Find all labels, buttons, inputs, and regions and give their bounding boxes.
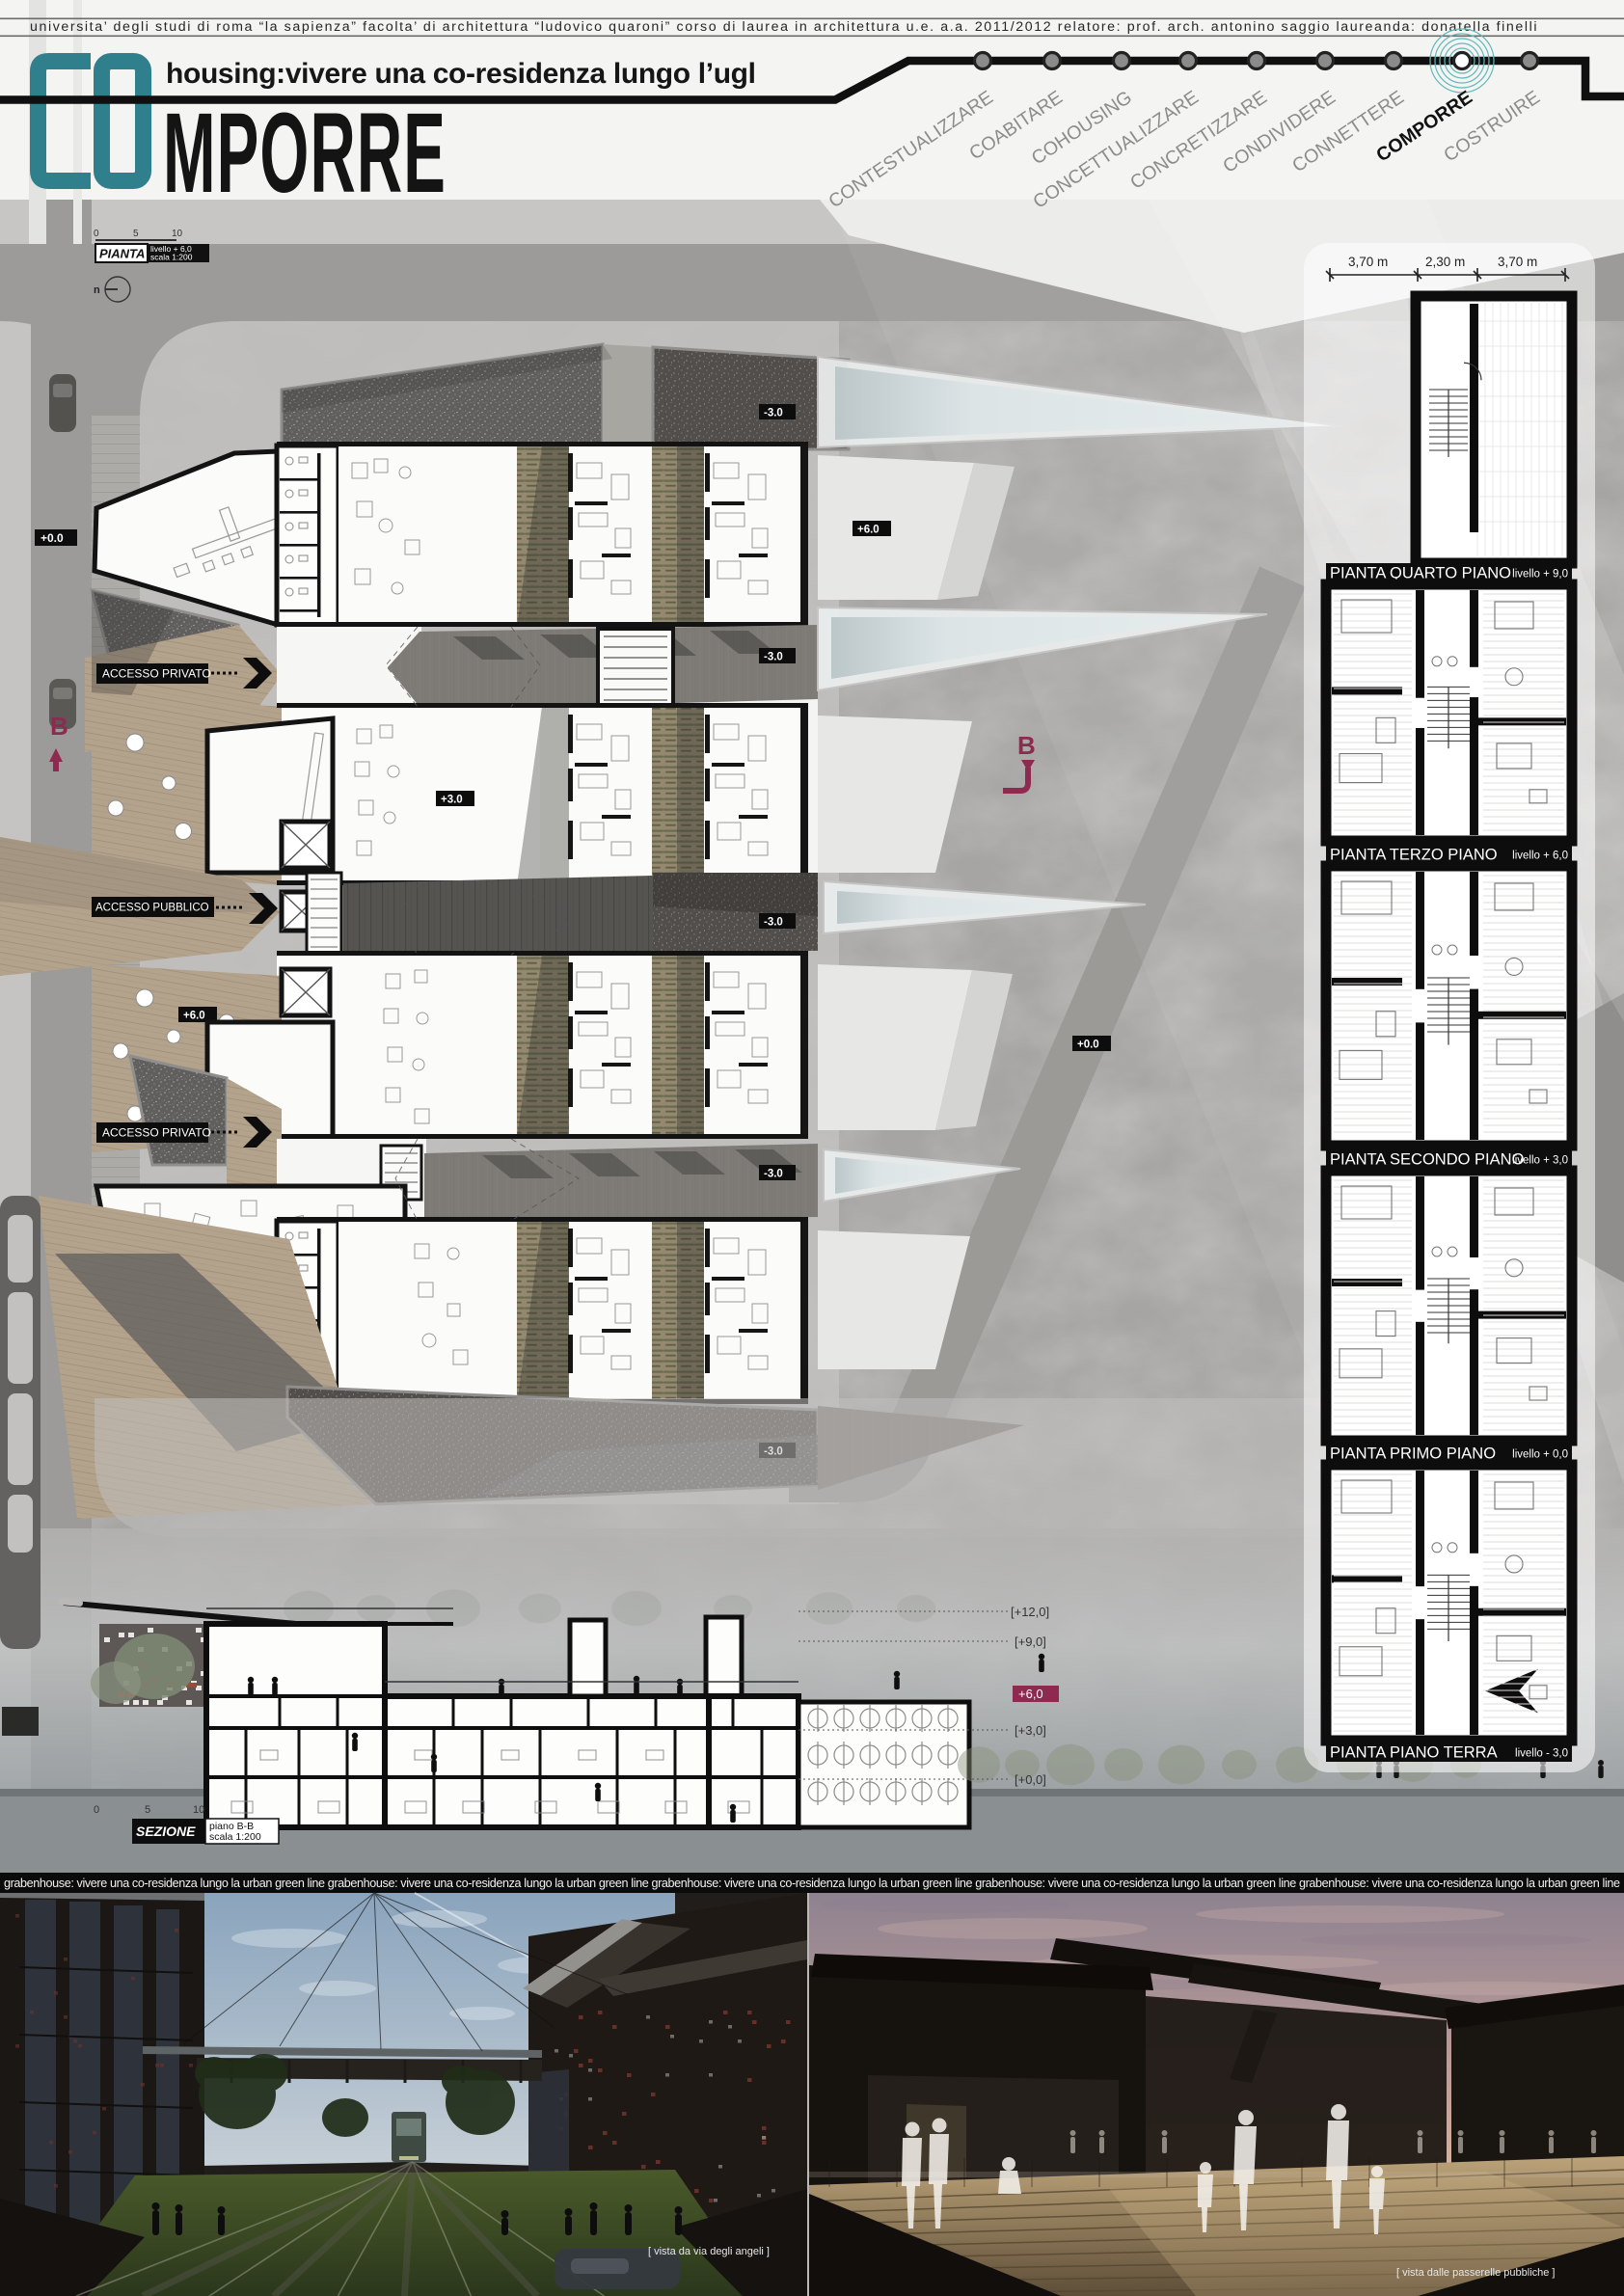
svg-text:10: 10 <box>193 1804 204 1816</box>
svg-text:+0.0: +0.0 <box>41 531 64 545</box>
svg-text:ACCESSO PUBBLICO: ACCESSO PUBBLICO <box>95 903 209 914</box>
svg-text:[+9,0]: [+9,0] <box>1015 1634 1046 1649</box>
svg-text:livello + 0,0: livello + 0,0 <box>1512 1449 1568 1461</box>
svg-text:[+3,0]: [+3,0] <box>1015 1723 1046 1738</box>
svg-text:0: 0 <box>94 229 99 239</box>
svg-text:B: B <box>1017 731 1036 760</box>
svg-text:PIANTA PIANO TERRA: PIANTA PIANO TERRA <box>1330 1744 1498 1762</box>
svg-text:+0.0: +0.0 <box>1077 1040 1099 1051</box>
svg-text:[+12,0]: [+12,0] <box>1011 1605 1049 1619</box>
svg-text:ACCESSO PRIVATO: ACCESSO PRIVATO <box>102 667 211 681</box>
svg-text:10: 10 <box>172 229 183 239</box>
svg-text:[+0,0]: [+0,0] <box>1015 1772 1046 1787</box>
svg-text:B: B <box>50 712 68 741</box>
svg-text:[ vista da via degli angeli ]: [ vista da via degli angeli ] <box>648 2246 770 2257</box>
svg-text:+6,0: +6,0 <box>1018 1687 1043 1701</box>
svg-text:2,30 m: 2,30 m <box>1425 255 1465 269</box>
svg-text:+3.0: +3.0 <box>441 795 463 806</box>
svg-text:housing:vivere una co-residenz: housing:vivere una co-residenza lungo l’… <box>166 58 756 90</box>
svg-text:scala 1:200: scala 1:200 <box>209 1831 261 1843</box>
svg-text:livello - 3,0: livello - 3,0 <box>1515 1748 1568 1760</box>
svg-text:5: 5 <box>133 229 139 239</box>
svg-text:livello + 6,0: livello + 6,0 <box>1512 851 1568 862</box>
svg-text:ACCESSO PRIVATO: ACCESSO PRIVATO <box>102 1126 211 1140</box>
svg-text:MPORRE: MPORRE <box>163 91 447 217</box>
svg-text:3,70 m: 3,70 m <box>1348 255 1388 269</box>
svg-text:-3.0: -3.0 <box>764 917 783 929</box>
svg-text:-3.0: -3.0 <box>764 408 783 419</box>
svg-text:livello + 3,0: livello + 3,0 <box>1512 1155 1568 1167</box>
svg-text:livello + 9,0: livello + 9,0 <box>1512 569 1568 581</box>
svg-text:universita’ degli studi di rom: universita’ degli studi di roma “la sapi… <box>30 19 1538 35</box>
svg-text:n: n <box>94 284 100 296</box>
svg-text:0: 0 <box>94 1804 99 1816</box>
svg-text:-3.0: -3.0 <box>764 652 783 663</box>
svg-text:PIANTA: PIANTA <box>99 247 145 261</box>
svg-text:+6.0: +6.0 <box>183 1011 205 1022</box>
svg-text:scala 1:200: scala 1:200 <box>150 253 193 262</box>
svg-text:grabenhouse: vivere una co-res: grabenhouse: vivere una co-residenza lun… <box>4 1877 1620 1890</box>
svg-text:5: 5 <box>145 1804 150 1816</box>
svg-text:3,70 m: 3,70 m <box>1498 255 1537 269</box>
svg-text:+6.0: +6.0 <box>857 525 880 536</box>
svg-text:SEZIONE: SEZIONE <box>136 1823 196 1839</box>
svg-text:[ vista dalle passerelle pubbl: [ vista dalle passerelle pubbliche ] <box>1396 2267 1555 2279</box>
svg-text:-3.0: -3.0 <box>764 1169 783 1180</box>
